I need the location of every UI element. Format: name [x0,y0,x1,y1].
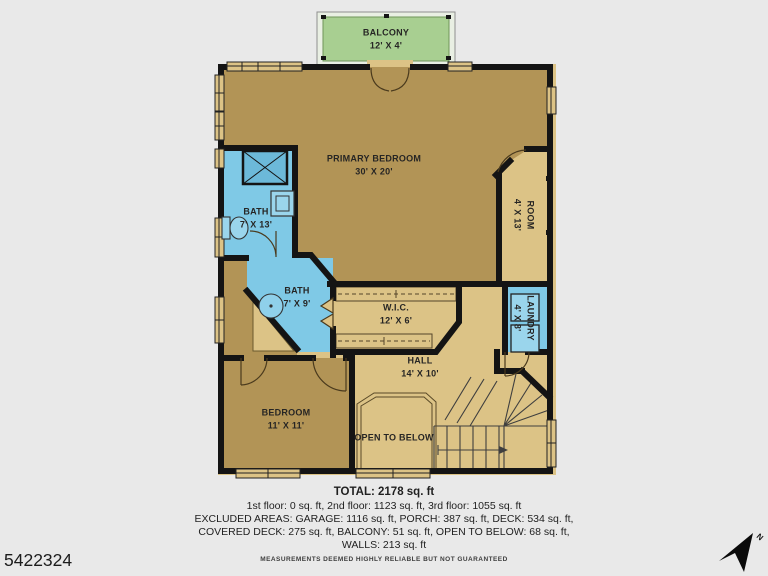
compass-north-label: N [755,532,765,543]
photo-id: 5422324 [4,550,72,571]
floor-plan-page: BALCONY 12' X 4' PRIMARY BEDROOM 30' X 2… [0,0,768,576]
room-label-open-to-below: OPEN TO BELOW [354,432,434,445]
room-label-room: ROOM 4' X 13' [511,199,536,231]
room-label-bath-large: BATH 7' X 13' [240,205,272,230]
room-label-balcony: BALCONY 12' X 4' [363,26,409,51]
room-label-bath-small: BATH 7' X 9' [283,284,310,309]
toilet-tank [222,217,230,239]
sink [271,191,294,216]
compass: N [700,520,768,576]
room-label-hall: HALL 14' X 10' [401,354,439,379]
room-label-wic: W.I.C. 12' X 6' [380,301,412,326]
summary-line-walls: WALLS: 213 sq. ft [0,539,768,552]
summary-line-floors: 1st floor: 0 sq. ft, 2nd floor: 1123 sq.… [0,500,768,513]
room-label-laundry: LAUNDRY 4' X 8' [511,295,536,340]
summary-line-excluded-1: EXCLUDED AREAS: GARAGE: 1116 sq. ft, POR… [0,513,768,526]
room-label-bedroom: BEDROOM 11' X 11' [262,406,311,431]
disclaimer-text: MEASUREMENTS DEEMED HIGHLY RELIABLE BUT … [0,556,768,563]
summary-total: TOTAL: 2178 sq. ft [0,486,768,498]
room-label-primary-bedroom: PRIMARY BEDROOM 30' X 20' [327,152,421,177]
north-arrow-icon [719,533,753,572]
area-summary: TOTAL: 2178 sq. ft 1st floor: 0 sq. ft, … [0,486,768,552]
summary-line-excluded-2: COVERED DECK: 275 sq. ft, BALCONY: 51 sq… [0,526,768,539]
